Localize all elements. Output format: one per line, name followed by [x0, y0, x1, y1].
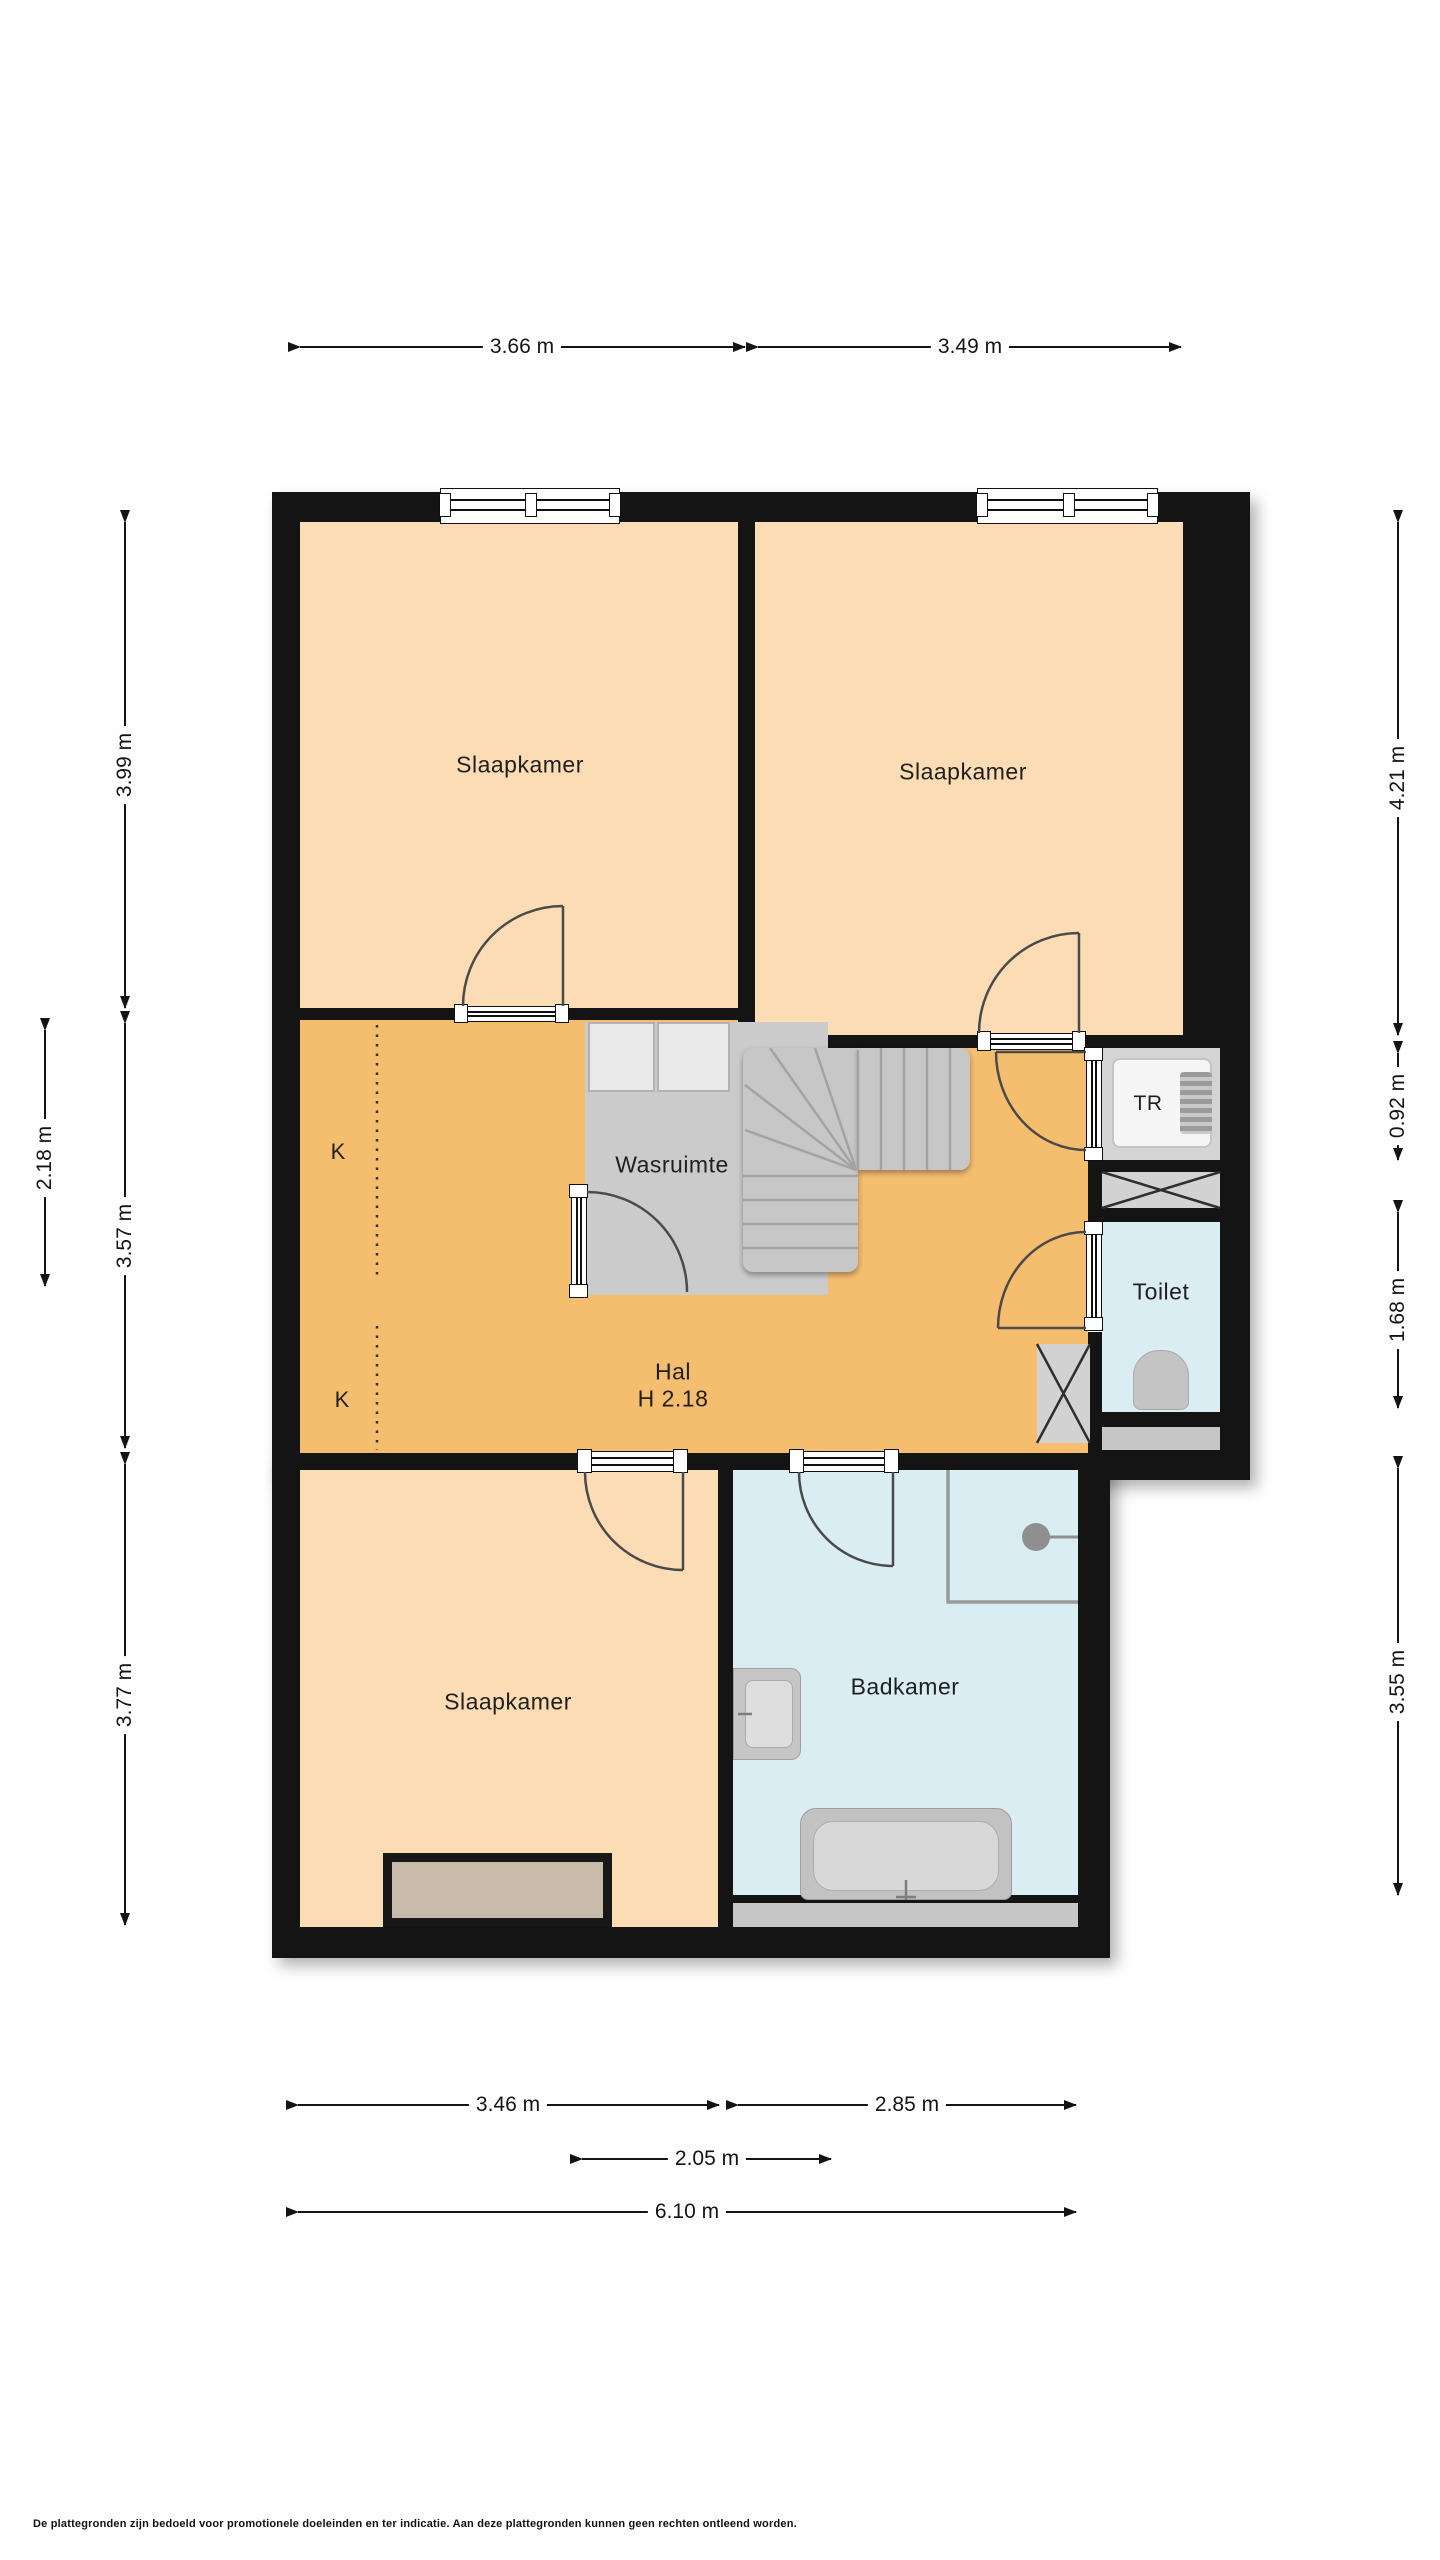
room-label-slaapkamer-tl: Slaapkamer [456, 752, 584, 779]
room-label-badkamer: Badkamer [851, 1674, 960, 1701]
dimension-label: 1.68 m [1385, 1271, 1411, 1349]
dimension-label: 2.18 m [32, 1119, 58, 1197]
dimension-label: 3.55 m [1385, 1643, 1411, 1721]
dimension-label: 3.46 m [469, 2092, 547, 2118]
disclaimer-text: De plattegronden zijn bedoeld voor promo… [33, 2518, 1413, 2530]
shaft-hatch-lines [1037, 1172, 1220, 1443]
dimension-label: 3.57 m [112, 1197, 138, 1275]
closet-label-k2: K [335, 1387, 350, 1413]
room-label-hal: Hal [655, 1359, 691, 1386]
dimension-label: 4.21 m [1385, 739, 1411, 817]
room-label-slaapkamer-tr: Slaapkamer [899, 759, 1027, 786]
floorplan-page: 3.66 m 3.49 m 3.99 m 2.18 m 3.57 m 3.77 … [0, 0, 1440, 2560]
room-label-tr: TR [1134, 1092, 1163, 1116]
dimension-label: 3.49 m [931, 334, 1009, 360]
tap-icon [738, 1714, 916, 1900]
room-label-hal-height: H 2.18 [638, 1386, 709, 1413]
dimension-label: 3.99 m [112, 726, 138, 804]
dimension-label: 3.77 m [112, 1656, 138, 1734]
plan-linework [0, 0, 1440, 2560]
room-label-toilet: Toilet [1133, 1279, 1190, 1306]
dimension-label: 3.66 m [483, 334, 561, 360]
dimension-label: 2.85 m [868, 2092, 946, 2118]
door-arc [463, 906, 1086, 1570]
room-label-wasruimte: Wasruimte [615, 1152, 729, 1179]
shower-icon [948, 1470, 1078, 1602]
dimension-label: 0.92 m [1385, 1067, 1411, 1145]
dimension-line [45, 347, 1398, 2212]
closet-label-k1: K [331, 1139, 346, 1165]
stair-treads [743, 1048, 950, 1248]
dimension-label: 2.05 m [668, 2146, 746, 2172]
dimension-label: 6.10 m [648, 2199, 726, 2225]
room-label-slaapkamer-bottom: Slaapkamer [444, 1689, 572, 1716]
